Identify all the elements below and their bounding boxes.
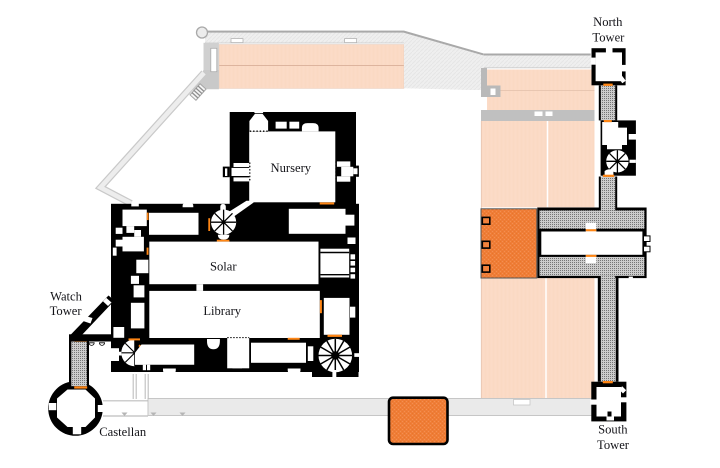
svg-text:Tower: Tower (597, 438, 630, 452)
svg-text:South: South (598, 423, 628, 437)
svg-text:Tower: Tower (50, 304, 83, 318)
svg-text:Tower: Tower (592, 30, 625, 44)
svg-text:North: North (593, 15, 623, 29)
svg-text:Library: Library (203, 304, 241, 318)
svg-text:Castellan: Castellan (99, 425, 147, 439)
svg-text:Watch: Watch (50, 289, 83, 303)
svg-text:Solar: Solar (210, 260, 237, 274)
svg-text:Nursery: Nursery (271, 161, 312, 175)
